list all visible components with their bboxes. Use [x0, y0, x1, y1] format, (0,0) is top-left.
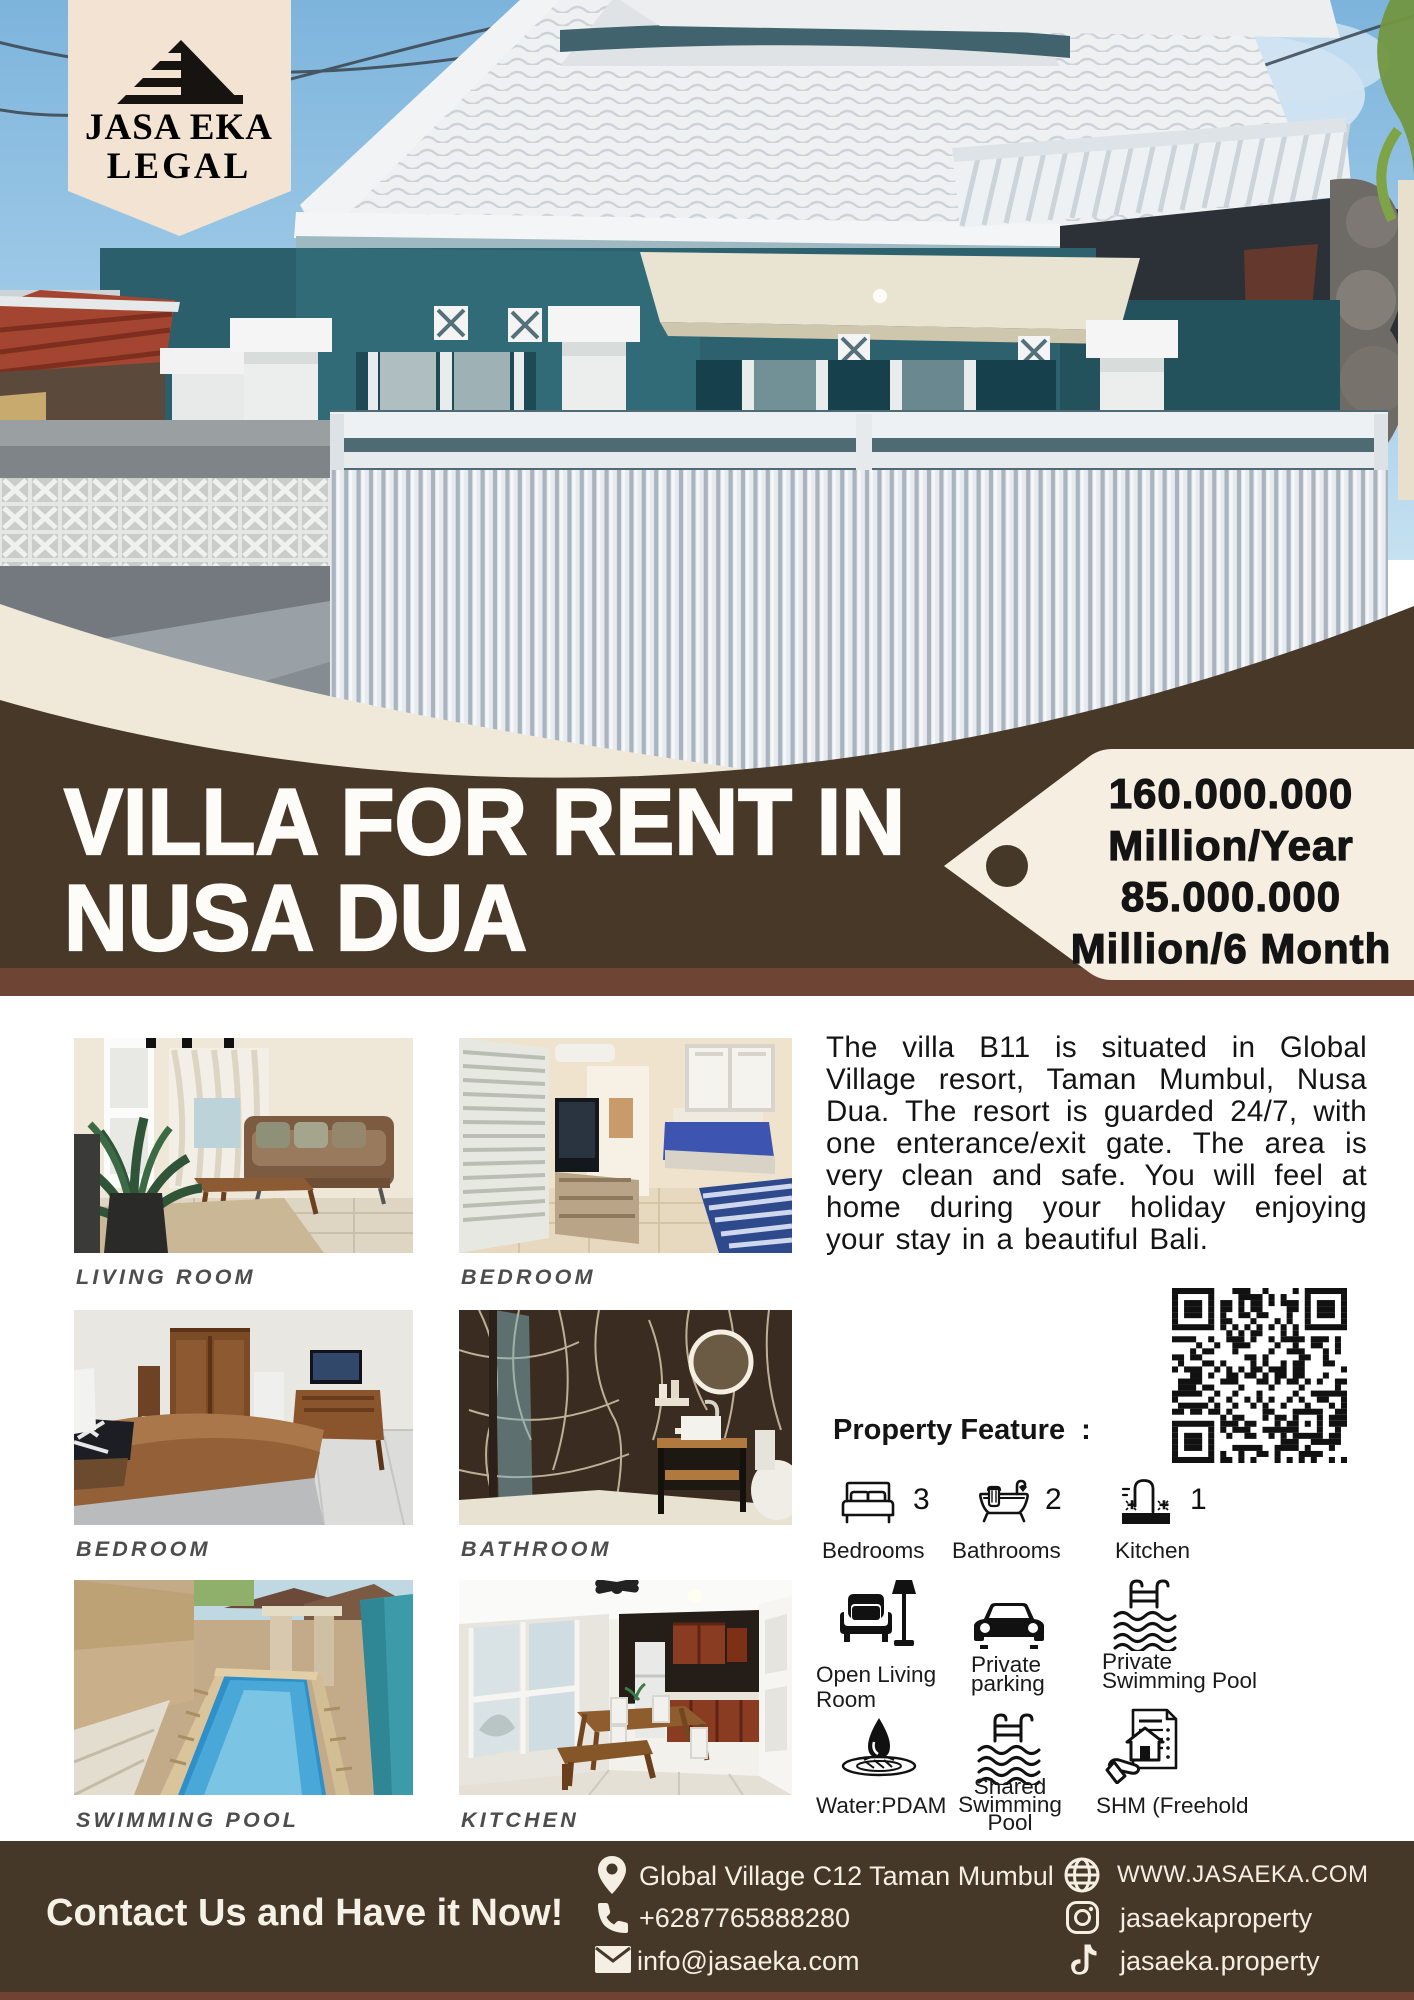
- svg-text:JASA EKA: JASA EKA: [85, 107, 273, 148]
- svg-text:LEGAL: LEGAL: [107, 146, 252, 187]
